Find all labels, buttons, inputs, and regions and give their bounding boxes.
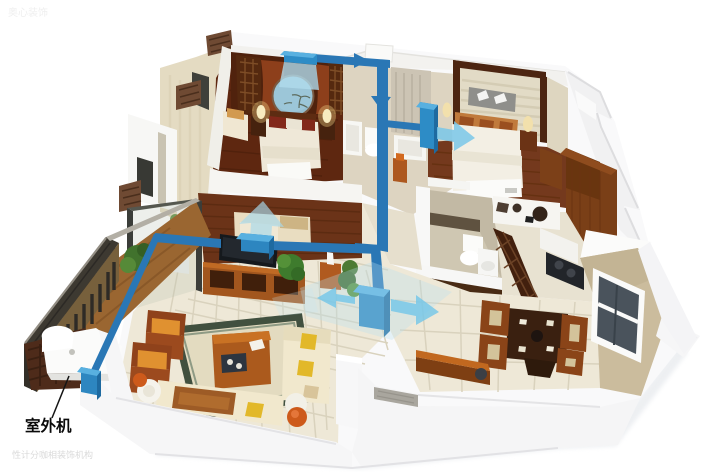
svg-text:性计分咖相装饰机构: 性计分咖相装饰机构 [12,449,93,460]
svg-text:室外机: 室外机 [25,416,72,435]
svg-text:奥心装饰: 奥心装饰 [8,6,48,19]
